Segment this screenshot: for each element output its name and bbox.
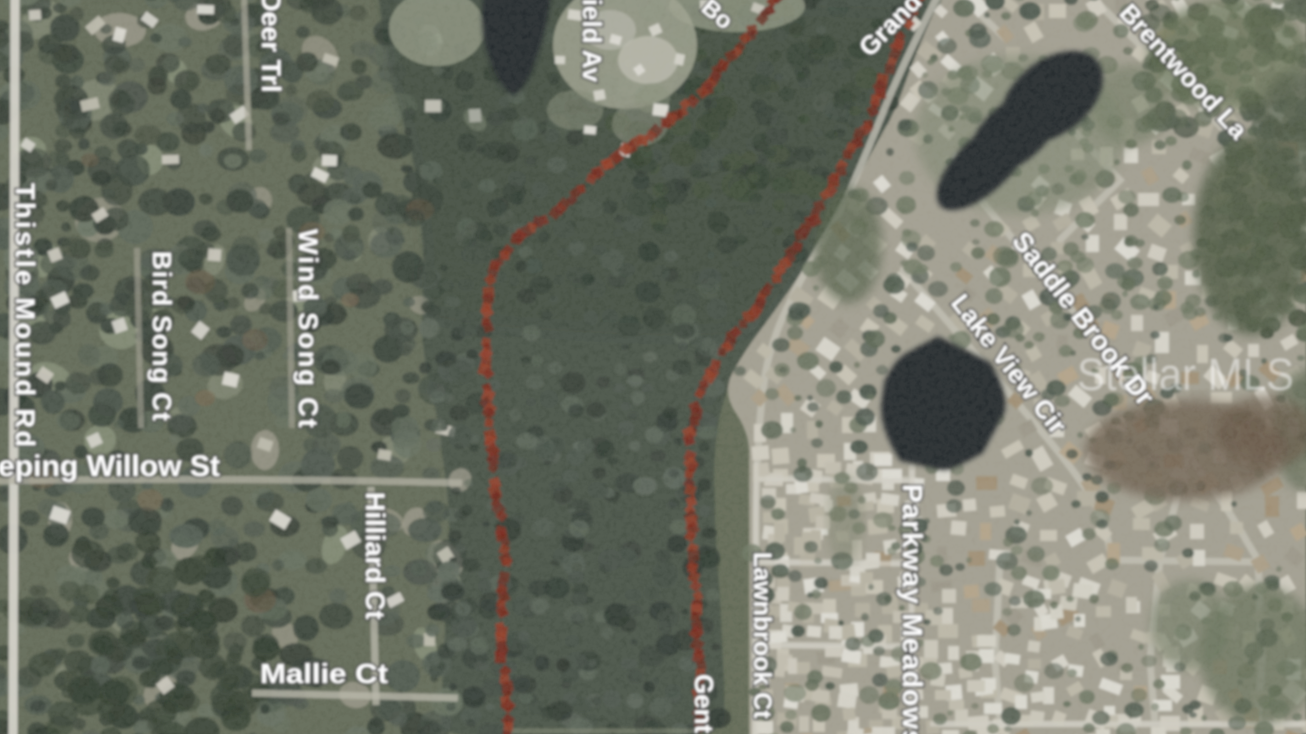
- svg-text:Wind Song Ct: Wind Song Ct: [293, 229, 323, 430]
- svg-text:Deer Trl: Deer Trl: [256, 0, 286, 93]
- svg-text:Hilliard Ct: Hilliard Ct: [360, 492, 390, 620]
- svg-text:Stellar MLS: Stellar MLS: [1077, 349, 1294, 400]
- svg-text:eping Willow St: eping Willow St: [0, 450, 220, 483]
- svg-text:Mallie Ct: Mallie Ct: [260, 658, 388, 689]
- svg-text:field Av: field Av: [577, 0, 607, 83]
- svg-text:Gent: Gent: [689, 674, 719, 734]
- svg-text:Thistle Mound Rd: Thistle Mound Rd: [10, 183, 40, 449]
- svg-text:Parkway Meadows: Parkway Meadows: [897, 484, 928, 734]
- svg-text:Lawnbrook Ct: Lawnbrook Ct: [748, 552, 776, 719]
- svg-text:Bird Song Ct: Bird Song Ct: [147, 251, 177, 422]
